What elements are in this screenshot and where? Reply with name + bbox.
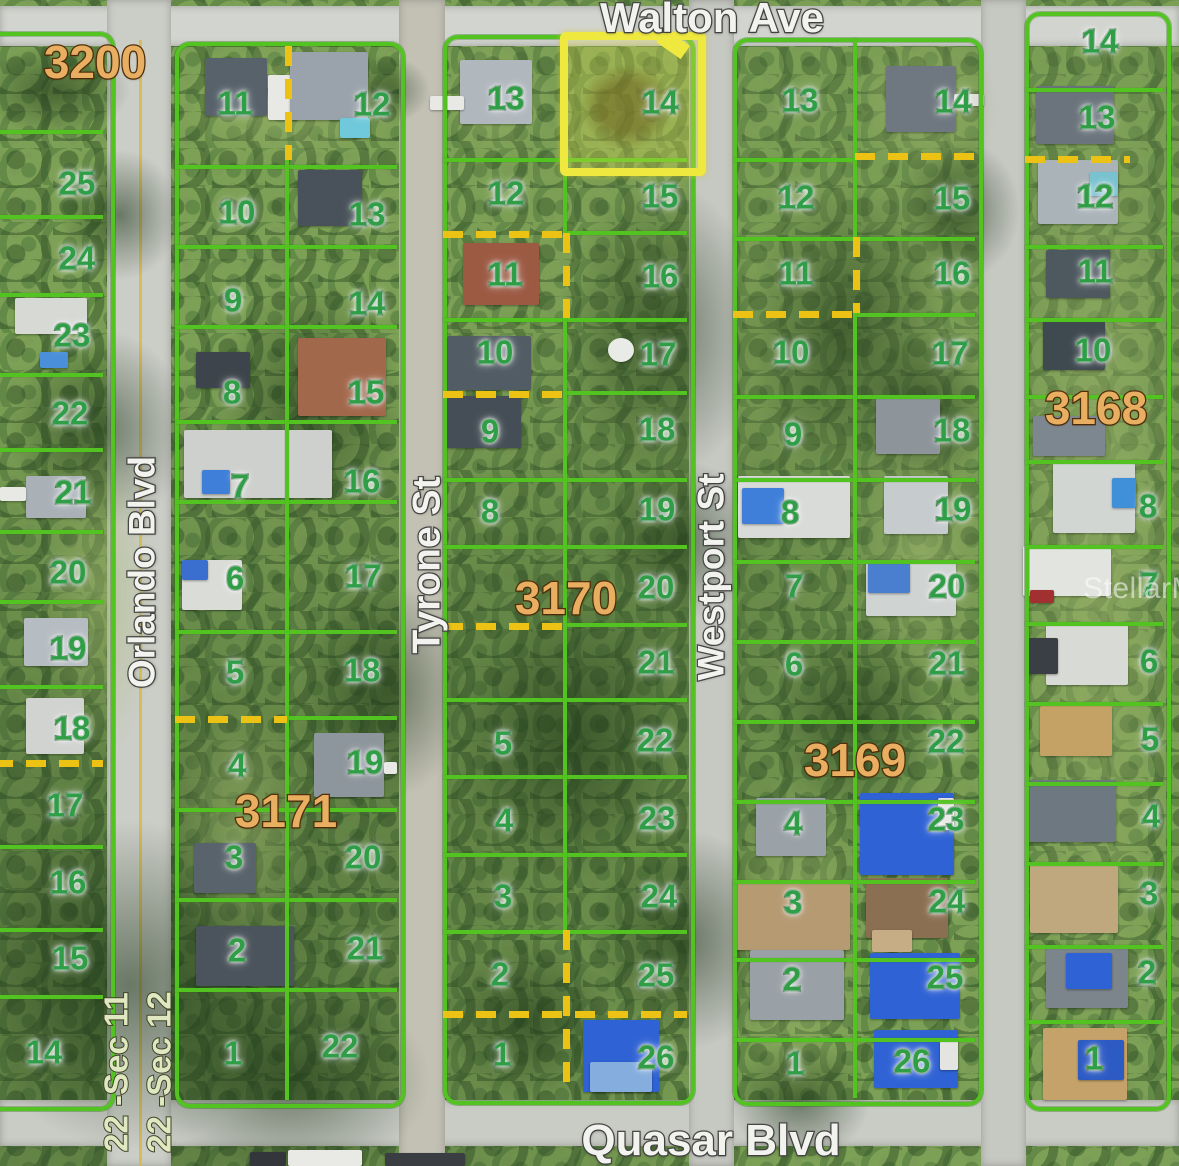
lot-boundary-line — [855, 313, 975, 317]
lot-number: 9 — [224, 284, 242, 317]
lot-number: 16 — [344, 465, 381, 498]
dashed-boundary-line — [853, 237, 860, 313]
lot-number: 24 — [59, 242, 96, 275]
lot-number: 13 — [782, 84, 819, 117]
lot-number: 16 — [50, 866, 87, 899]
lot-number: 1 — [1085, 1042, 1103, 1075]
lot-number: 6 — [226, 562, 244, 595]
lot-number: 11 — [218, 87, 253, 120]
lot-number: 19 — [639, 493, 676, 526]
lot-number: 26 — [894, 1045, 931, 1078]
lot-boundary-line — [0, 685, 103, 689]
road — [981, 0, 1026, 1166]
lot-boundary-line — [0, 373, 103, 377]
lot-number: 21 — [638, 646, 675, 679]
lot-number: 6 — [1140, 645, 1158, 678]
lot-boundary-line — [0, 448, 103, 452]
lot-boundary-line — [0, 130, 103, 134]
lot-number: 2 — [228, 934, 246, 967]
lot-number: 10 — [219, 196, 256, 229]
block-number: 3171 — [235, 788, 337, 834]
lot-number: 5 — [226, 656, 244, 689]
lot-number: 10 — [773, 336, 810, 369]
lot-number: 22 — [637, 724, 674, 757]
lot-number: 15 — [52, 942, 89, 975]
lot-number: 15 — [934, 182, 971, 215]
lot-number: 23 — [54, 319, 91, 352]
lot-number: 7 — [785, 570, 803, 603]
lot-number: 2 — [783, 963, 801, 996]
section-label-sec-11: 22 -Sec 11 — [100, 992, 133, 1152]
block-number: 3200 — [44, 39, 146, 85]
lot-number: 9 — [784, 418, 802, 451]
lot-number: 19 — [935, 493, 972, 526]
lot-number: 19 — [347, 746, 384, 779]
lot-number: 18 — [54, 712, 91, 745]
lot-number: 14 — [935, 85, 972, 118]
lot-number: 10 — [477, 336, 514, 369]
lot-number: 18 — [934, 414, 971, 447]
lot-number: 2 — [491, 958, 509, 991]
lot-number: 3 — [494, 880, 512, 913]
lot-boundary-line — [565, 231, 687, 235]
lot-boundary-line — [285, 160, 289, 1100]
lot-number: 21 — [929, 647, 966, 680]
building-roof — [385, 1153, 465, 1166]
street-label-quasar-blvd: Quasar Blvd — [581, 1119, 840, 1163]
lot-number: 5 — [1141, 723, 1159, 756]
lot-number: 26 — [638, 1041, 675, 1074]
lot-boundary-line — [1025, 945, 1163, 949]
lot-number: 20 — [929, 570, 966, 603]
lot-number: 1 — [493, 1038, 511, 1071]
lot-boundary-line — [287, 716, 397, 720]
lot-number: 22 — [928, 725, 965, 758]
lot-number: 8 — [481, 495, 499, 528]
lot-number: 15 — [348, 376, 385, 409]
lot-number: 15 — [642, 180, 679, 213]
lot-number: 12 — [354, 88, 391, 121]
block-number: 3169 — [804, 737, 906, 783]
lot-boundary-line — [1025, 245, 1163, 249]
lot-number: 25 — [638, 959, 675, 992]
lot-number: 16 — [642, 260, 679, 293]
lot-boundary-line — [1025, 782, 1163, 786]
lot-boundary-line — [0, 928, 103, 932]
lot-number: 8 — [1139, 490, 1157, 523]
lot-number: 25 — [927, 961, 964, 994]
dashed-boundary-line — [175, 716, 287, 723]
lot-number: 4 — [495, 804, 513, 837]
lot-boundary-line — [0, 293, 103, 297]
building-roof — [288, 1150, 362, 1166]
lot-number: 20 — [345, 841, 382, 874]
lot-number: 5 — [494, 727, 512, 760]
lot-boundary-line — [853, 313, 857, 1098]
lot-number: 13 — [349, 198, 386, 231]
lot-boundary-line — [1025, 545, 1163, 549]
lot-number: 21 — [55, 476, 92, 509]
lot-number: 8 — [223, 376, 241, 409]
lot-number: 8 — [781, 496, 799, 529]
lot-number: 3 — [784, 886, 802, 919]
dashed-boundary-line — [443, 391, 565, 398]
lot-number: 17 — [932, 337, 969, 370]
lot-boundary-line — [0, 530, 103, 534]
lot-number: 19 — [50, 632, 87, 665]
lot-number: 7 — [231, 470, 249, 503]
lot-boundary-line — [1025, 1020, 1163, 1024]
dashed-boundary-line — [1025, 156, 1130, 163]
lot-boundary-line — [853, 38, 857, 237]
lot-number: 20 — [638, 571, 675, 604]
lot-number: 11 — [779, 257, 814, 290]
lot-number: 24 — [641, 880, 678, 913]
lot-number: 4 — [228, 749, 246, 782]
lot-number: 23 — [928, 803, 965, 836]
lot-number: 2 — [1138, 956, 1156, 989]
street-label-walton-ave: Walton Ave — [600, 0, 824, 39]
lot-number: 18 — [639, 413, 676, 446]
lot-boundary-line — [1025, 318, 1163, 322]
lot-number: 9 — [481, 415, 499, 448]
lot-number: 21 — [347, 932, 384, 965]
lot-number: 1 — [786, 1047, 804, 1080]
stellar-mls-watermark: StellarMLS — [1083, 572, 1179, 606]
lot-number: 4 — [1142, 800, 1160, 833]
lot-boundary-line — [0, 995, 103, 999]
plat-map: 3200252423222120191817161514317111121013… — [0, 0, 1179, 1166]
dashed-boundary-line — [733, 311, 855, 318]
lot-number: 6 — [785, 648, 803, 681]
lot-number: 12 — [488, 177, 525, 210]
block-number: 3168 — [1045, 385, 1147, 431]
lot-boundary-line — [565, 391, 687, 395]
lot-boundary-line — [1025, 862, 1163, 866]
lot-boundary-line — [1025, 460, 1163, 464]
dashed-boundary-line — [855, 153, 975, 160]
lot-number: 1 — [224, 1037, 242, 1070]
lot-number: 4 — [784, 807, 802, 840]
street-label-orlando-blvd: Orlando Blvd — [124, 456, 161, 688]
lot-number-highlighted: 14 — [642, 86, 679, 119]
lot-number: 24 — [929, 885, 966, 918]
dashed-boundary-line — [563, 930, 570, 1095]
lot-number: 20 — [50, 556, 87, 589]
lot-number: 17 — [345, 560, 382, 593]
lot-number: 13 — [488, 82, 525, 115]
section-label-sec-12: 22 -Sec 12 — [143, 991, 176, 1152]
lot-number: 16 — [934, 257, 971, 290]
building-roof — [250, 1152, 286, 1166]
lot-number: 13 — [1079, 101, 1116, 134]
dashed-boundary-line — [563, 233, 570, 318]
dashed-boundary-line — [443, 623, 565, 630]
street-label-tyrone-st: Tyrone St — [408, 477, 447, 654]
block-number: 3170 — [515, 575, 617, 621]
lot-number: 14 — [1082, 25, 1119, 58]
lot-boundary-line — [0, 600, 103, 604]
lot-number: 3 — [225, 841, 243, 874]
lot-boundary-line — [1025, 88, 1163, 92]
lot-number: 3 — [1140, 877, 1158, 910]
street-label-westport-st: Westport St — [693, 474, 730, 681]
lot-boundary-line — [1025, 702, 1163, 706]
lot-boundary-line — [1025, 622, 1163, 626]
lot-number: 18 — [344, 654, 381, 687]
lot-number: 14 — [349, 287, 386, 320]
lot-boundary-line — [0, 845, 103, 849]
lot-number: 10 — [1075, 334, 1112, 367]
lot-number: 17 — [640, 338, 677, 371]
lot-number: 11 — [1078, 255, 1113, 288]
lot-number: 14 — [26, 1036, 63, 1069]
dashed-boundary-line — [443, 231, 565, 238]
lot-number: 17 — [47, 789, 84, 822]
lot-boundary-line — [0, 215, 103, 219]
lot-boundary-line — [733, 158, 855, 162]
lot-number: 12 — [1077, 180, 1114, 213]
dashed-boundary-line — [0, 760, 103, 767]
lot-number: 11 — [488, 258, 523, 291]
lot-number: 22 — [52, 397, 89, 430]
lot-number: 25 — [59, 167, 96, 200]
lot-number: 12 — [778, 181, 815, 214]
lot-number: 23 — [639, 802, 676, 835]
dashed-boundary-line — [285, 46, 292, 160]
lot-number: 22 — [322, 1030, 359, 1063]
